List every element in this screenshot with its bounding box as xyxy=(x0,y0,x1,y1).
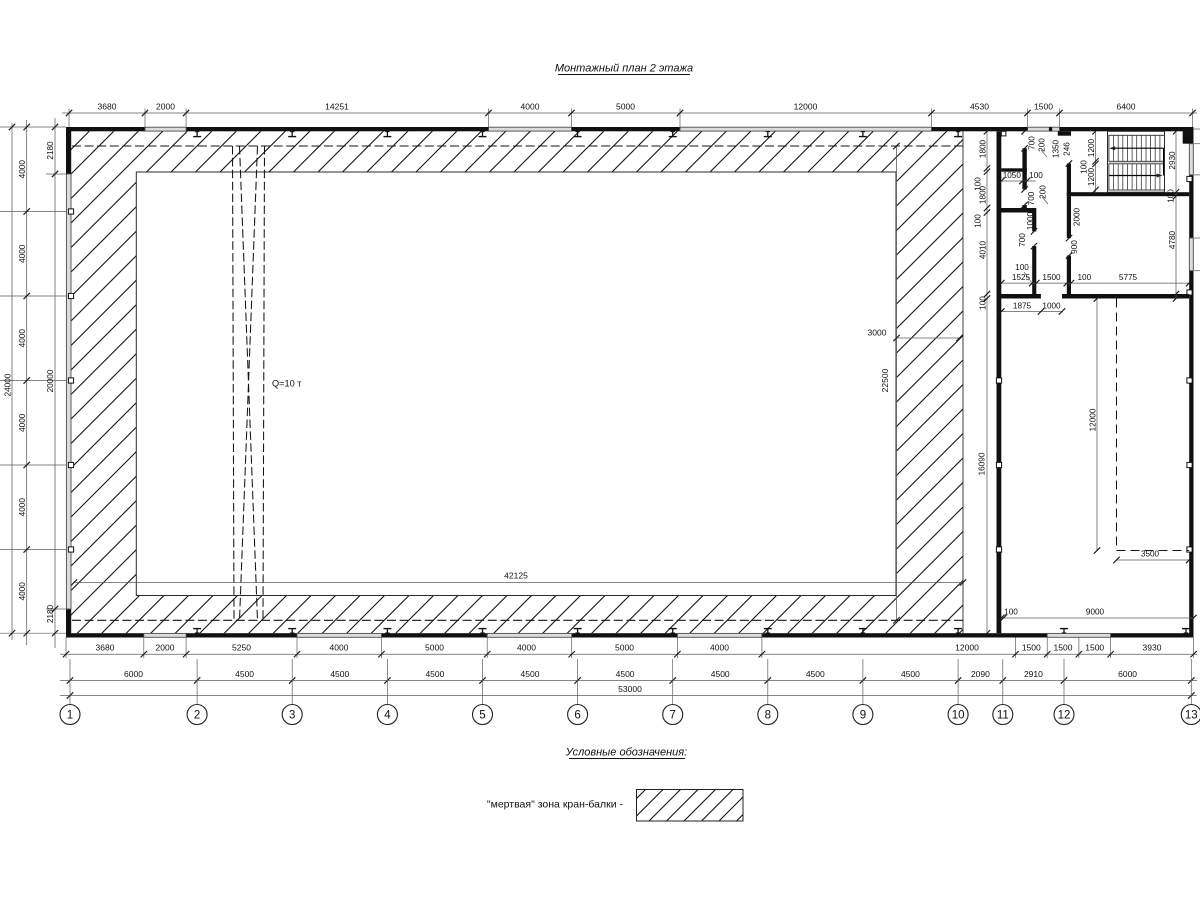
svg-text:700: 700 xyxy=(1027,191,1036,205)
svg-text:1500: 1500 xyxy=(1085,643,1104,653)
svg-text:Q=10 т: Q=10 т xyxy=(272,379,302,389)
svg-text:1800: 1800 xyxy=(978,139,987,158)
svg-text:100: 100 xyxy=(973,214,982,228)
svg-text:12000: 12000 xyxy=(955,643,979,653)
svg-text:1200: 1200 xyxy=(1087,138,1096,157)
svg-text:100: 100 xyxy=(978,296,987,310)
svg-text:4000: 4000 xyxy=(330,643,349,653)
svg-text:900: 900 xyxy=(1070,240,1079,254)
svg-text:3680: 3680 xyxy=(98,102,117,112)
svg-text:13: 13 xyxy=(1185,710,1198,722)
svg-text:4000: 4000 xyxy=(18,582,27,601)
svg-text:11: 11 xyxy=(997,710,1009,722)
svg-text:4: 4 xyxy=(384,710,391,722)
svg-text:5775: 5775 xyxy=(1119,273,1138,282)
svg-text:9000: 9000 xyxy=(1086,608,1105,617)
svg-text:4500: 4500 xyxy=(711,669,730,679)
svg-text:6000: 6000 xyxy=(1118,669,1137,679)
svg-text:4000: 4000 xyxy=(517,643,536,653)
svg-text:1050: 1050 xyxy=(1003,171,1022,180)
svg-text:5250: 5250 xyxy=(232,643,251,653)
svg-text:1200: 1200 xyxy=(1087,167,1096,186)
svg-text:700: 700 xyxy=(1018,233,1027,247)
svg-text:Монтажный план 2 этажа: Монтажный план 2 этажа xyxy=(555,63,693,75)
svg-text:1500: 1500 xyxy=(1022,643,1041,653)
svg-text:4000: 4000 xyxy=(18,329,27,348)
svg-text:700: 700 xyxy=(1027,136,1036,150)
svg-text:14251: 14251 xyxy=(325,102,349,112)
svg-text:5000: 5000 xyxy=(616,102,635,112)
svg-text:2180: 2180 xyxy=(46,141,55,160)
svg-text:4500: 4500 xyxy=(616,669,635,679)
svg-text:12000: 12000 xyxy=(1088,408,1097,431)
svg-text:4500: 4500 xyxy=(521,669,540,679)
svg-text:4000: 4000 xyxy=(18,413,27,432)
svg-text:100: 100 xyxy=(1166,189,1175,203)
svg-text:2: 2 xyxy=(194,710,200,722)
svg-text:16090: 16090 xyxy=(977,452,986,475)
svg-text:6000: 6000 xyxy=(124,669,143,679)
svg-text:246: 246 xyxy=(1063,142,1072,156)
svg-text:42125: 42125 xyxy=(504,571,528,581)
svg-text:2910: 2910 xyxy=(1024,669,1043,679)
svg-text:4000: 4000 xyxy=(18,244,27,263)
svg-text:100: 100 xyxy=(1015,263,1029,272)
svg-text:22500: 22500 xyxy=(880,368,890,392)
svg-text:2930: 2930 xyxy=(1168,151,1177,170)
svg-text:2000: 2000 xyxy=(156,643,175,653)
svg-text:4010: 4010 xyxy=(978,240,987,259)
svg-text:1: 1 xyxy=(67,710,73,722)
svg-text:5000: 5000 xyxy=(615,643,634,653)
svg-text:1500: 1500 xyxy=(1034,102,1053,112)
svg-text:4530: 4530 xyxy=(970,102,989,112)
svg-text:3: 3 xyxy=(289,710,295,722)
svg-text:Условные обозначения:: Условные обозначения: xyxy=(565,747,687,759)
svg-text:4000: 4000 xyxy=(710,643,729,653)
svg-text:1875: 1875 xyxy=(1013,302,1032,311)
svg-text:1000: 1000 xyxy=(1042,302,1061,311)
svg-text:4000: 4000 xyxy=(521,102,540,112)
svg-text:5: 5 xyxy=(479,710,485,722)
svg-text:100: 100 xyxy=(1029,171,1043,180)
svg-text:100: 100 xyxy=(1004,608,1018,617)
svg-text:4500: 4500 xyxy=(425,669,444,679)
svg-text:3680: 3680 xyxy=(96,643,115,653)
svg-text:7: 7 xyxy=(669,710,675,722)
svg-text:3000: 3000 xyxy=(868,328,887,338)
svg-text:53000: 53000 xyxy=(618,684,642,694)
svg-text:1500: 1500 xyxy=(1042,273,1061,282)
svg-text:2180: 2180 xyxy=(46,604,55,623)
svg-text:1350: 1350 xyxy=(1051,139,1060,158)
svg-text:4000: 4000 xyxy=(18,160,27,179)
svg-text:24000: 24000 xyxy=(3,373,12,396)
svg-text:9: 9 xyxy=(860,710,866,722)
svg-text:2000: 2000 xyxy=(1072,207,1081,226)
svg-text:10: 10 xyxy=(952,710,965,722)
svg-text:1500: 1500 xyxy=(1054,643,1073,653)
svg-text:5000: 5000 xyxy=(425,643,444,653)
svg-text:4500: 4500 xyxy=(330,669,349,679)
svg-text:12000: 12000 xyxy=(794,102,818,112)
svg-text:4000: 4000 xyxy=(18,498,27,517)
svg-text:100: 100 xyxy=(1078,273,1092,282)
svg-text:6: 6 xyxy=(574,710,580,722)
svg-text:4500: 4500 xyxy=(901,669,920,679)
svg-text:4500: 4500 xyxy=(806,669,825,679)
svg-text:3930: 3930 xyxy=(1143,643,1162,653)
svg-text:20000: 20000 xyxy=(46,369,55,392)
svg-text:3500: 3500 xyxy=(1141,550,1160,559)
svg-text:2090: 2090 xyxy=(971,669,990,679)
svg-text:1800: 1800 xyxy=(978,185,987,204)
svg-text:8: 8 xyxy=(765,710,771,722)
svg-text:2000: 2000 xyxy=(156,102,175,112)
svg-text:4500: 4500 xyxy=(235,669,254,679)
svg-text:200: 200 xyxy=(1037,138,1046,152)
svg-text:"мертвая" зона кран-балки -: "мертвая" зона кран-балки - xyxy=(487,799,624,811)
svg-text:12: 12 xyxy=(1058,710,1071,722)
svg-text:4780: 4780 xyxy=(1168,230,1177,249)
svg-text:6400: 6400 xyxy=(1117,102,1136,112)
svg-text:1000: 1000 xyxy=(1026,211,1035,230)
svg-text:200: 200 xyxy=(1038,185,1047,199)
